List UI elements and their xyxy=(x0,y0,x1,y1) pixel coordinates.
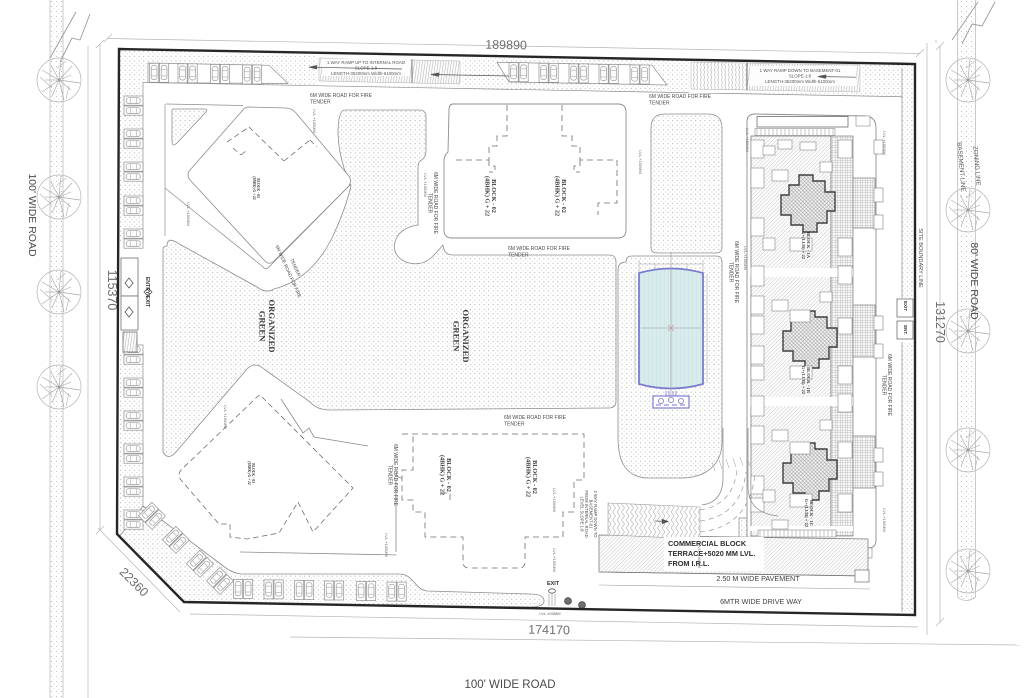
svg-text:TENDER: TENDER xyxy=(504,422,525,428)
svg-text:BLOCK - 03(3BHK) G + 22: BLOCK - 03(3BHK) G + 22 xyxy=(252,176,260,200)
svg-text:2.50 M WIDE PAVEMENT: 2.50 M WIDE PAVEMENT xyxy=(716,574,800,583)
svg-text:EXIT: EXIT xyxy=(903,301,908,311)
svg-text:BLOCK - 02(4BHK) G + 22: BLOCK - 02(4BHK) G + 22 xyxy=(483,176,497,216)
svg-text:LVL.+150MM: LVL.+150MM xyxy=(697,544,702,568)
svg-text:LVL.+150MM: LVL.+150MM xyxy=(552,548,557,572)
svg-text:LVL.+150MM: LVL.+150MM xyxy=(223,405,228,429)
svg-text:BLOCK - 02(4BHK) G + 22: BLOCK - 02(4BHK) G + 22 xyxy=(438,455,452,495)
svg-text:189890: 189890 xyxy=(485,38,527,53)
svg-text:LVL.+150MM: LVL.+150MM xyxy=(552,488,557,512)
svg-text:BLOCK - 1CG+(LUB) + 22: BLOCK - 1CG+(LUB) + 22 xyxy=(804,499,814,528)
svg-text:LENGTH-35200mm Width-6100mm: LENGTH-35200mm Width-6100mm xyxy=(765,79,835,84)
svg-text:2 WAY RAMP DOWN TOBASEMENT-01F: 2 WAY RAMP DOWN TOBASEMENT-01FROM INTERN… xyxy=(580,490,599,538)
svg-text:EXIT: EXIT xyxy=(547,581,560,587)
svg-text:SLOPE-1:8: SLOPE-1:8 xyxy=(789,74,812,79)
svg-text:TENDER: TENDER xyxy=(508,253,529,259)
svg-text:LVL.+150MM: LVL.+150MM xyxy=(638,150,643,174)
svg-text:BLOCK - 1BG+(LUB) + 22: BLOCK - 1BG+(LUB) + 22 xyxy=(801,366,811,395)
svg-text:1 WAY RAMP DOWN TO BASEMENT-01: 1 WAY RAMP DOWN TO BASEMENT-01 xyxy=(760,68,841,73)
svg-text:LVL.+150MM: LVL.+150MM xyxy=(882,131,887,155)
svg-text:LVL.+150MM: LVL.+150MM xyxy=(745,128,750,152)
svg-text:6M WIDE ROAD FOR FIRE: 6M WIDE ROAD FOR FIRE xyxy=(310,93,373,99)
svg-text:LENGTH-35200mm Width-6100mm: LENGTH-35200mm Width-6100mm xyxy=(331,71,401,76)
svg-text:6MTR WIDE DRIVE WAY: 6MTR WIDE DRIVE WAY xyxy=(720,597,802,606)
svg-text:BLOCK - 02(4BHK) G + 22: BLOCK - 02(4BHK) G + 22 xyxy=(524,457,538,497)
svg-text:80' WIDE ROAD: 80' WIDE ROAD xyxy=(968,242,980,320)
svg-text:FROM I.R.L.: FROM I.R.L. xyxy=(668,559,709,568)
svg-text:LVL.±00MM: LVL.±00MM xyxy=(539,611,560,616)
svg-text:100' WIDE ROAD: 100' WIDE ROAD xyxy=(26,173,38,257)
svg-text:ENT.: ENT. xyxy=(903,325,908,335)
svg-text:131270: 131270 xyxy=(933,301,947,343)
svg-text:174170: 174170 xyxy=(528,623,570,638)
svg-text:ENTRY/EXIT: ENTRY/EXIT xyxy=(144,277,150,308)
svg-text:LVL.+150MM: LVL.+150MM xyxy=(384,533,389,557)
svg-text:SITE BOUNDARY LINE: SITE BOUNDARY LINE xyxy=(917,228,923,288)
svg-text:LVL.+150MM: LVL.+150MM xyxy=(312,109,317,133)
svg-text:BLOCK - 02(4BHK) G + 22: BLOCK - 02(4BHK) G + 22 xyxy=(553,176,567,216)
svg-text:LVL.+150MM: LVL.+150MM xyxy=(423,173,428,197)
svg-text:LVL.+150MM: LVL.+150MM xyxy=(186,202,191,226)
svg-text:TERRACE+5020 MM LVL.: TERRACE+5020 MM LVL. xyxy=(668,549,755,558)
svg-text:100' WIDE ROAD: 100' WIDE ROAD xyxy=(464,679,555,691)
svg-text:6M WIDE ROAD FOR FIRE: 6M WIDE ROAD FOR FIRE xyxy=(649,94,712,100)
svg-text:6M WIDE ROAD FOR FIRE: 6M WIDE ROAD FOR FIRE xyxy=(508,246,571,252)
svg-text:LVL.+150MM: LVL.+150MM xyxy=(882,508,887,532)
svg-text:TENDER: TENDER xyxy=(310,100,331,106)
svg-text:BLOCK - 1AG+(LUB) + 22: BLOCK - 1AG+(LUB) + 22 xyxy=(801,231,811,260)
svg-text:TENDER: TENDER xyxy=(649,101,670,107)
svg-text:LVL.+150MM: LVL.+150MM xyxy=(743,246,748,270)
svg-text:6M WIDE ROAD FOR FIRE: 6M WIDE ROAD FOR FIRE xyxy=(504,415,567,421)
svg-text:BLOCK - 03(3BHK) G + 22: BLOCK - 03(3BHK) G + 22 xyxy=(247,461,255,485)
svg-text:1 WAY RAMP UP TO INTERNAL ROAD: 1 WAY RAMP UP TO INTERNAL ROAD xyxy=(327,60,405,65)
svg-text:COMMERCIAL BLOCK: COMMERCIAL BLOCK xyxy=(668,539,747,548)
